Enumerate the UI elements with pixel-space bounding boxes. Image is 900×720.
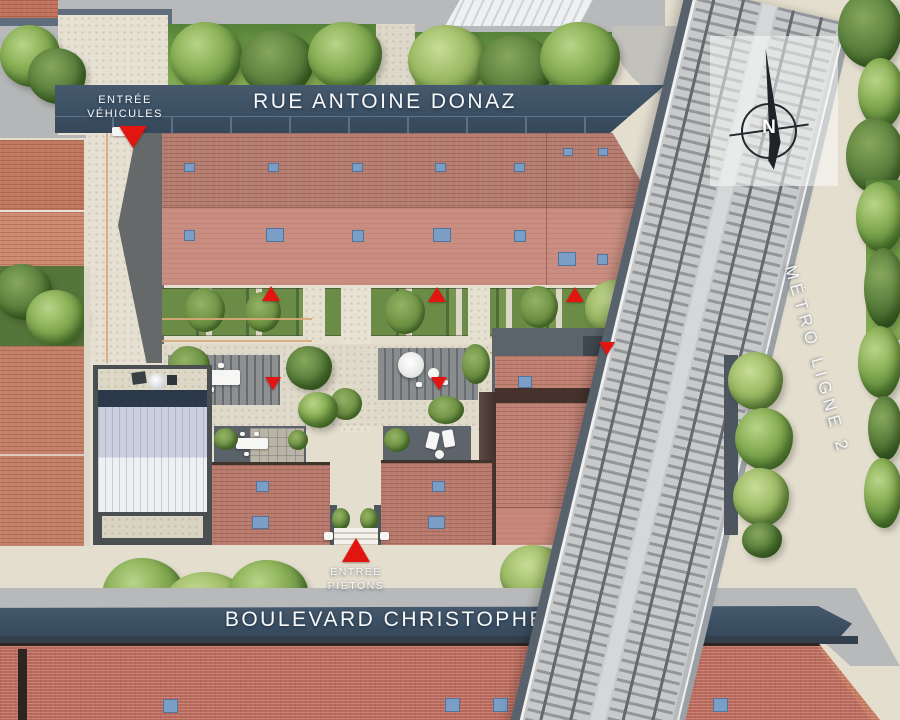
chair [442, 380, 448, 385]
tree [298, 392, 338, 428]
lounger [425, 431, 440, 450]
parasol [398, 352, 424, 378]
vehicle-entrance-line1: ENTRÉE [62, 93, 188, 107]
main-roof-seam [546, 133, 547, 285]
hvac-unit [131, 371, 147, 385]
bush [385, 290, 425, 334]
main-roof-upper-slope [162, 133, 660, 207]
chair [218, 363, 224, 368]
neighbor-roof-top-left [0, 0, 58, 18]
tree [170, 22, 242, 92]
skylight [352, 163, 363, 172]
pergola-beam [162, 318, 312, 320]
neighbor-roof-ridge [0, 454, 90, 456]
building-B-roof [381, 460, 492, 545]
hvac-unit [167, 375, 177, 385]
vehicle-entrance-label: ENTRÉE VÉHICULES [62, 93, 188, 121]
terrace-A-plant [288, 430, 308, 450]
skylight [514, 163, 525, 172]
tree [735, 408, 793, 470]
entrance-steps [334, 528, 378, 545]
chair [416, 382, 422, 387]
pedestrian-entrance-label: ENTRÉE PIÉTONS [298, 565, 414, 593]
tree [858, 58, 900, 128]
skylight [713, 698, 728, 712]
chimney-shadow [18, 649, 27, 720]
chair [244, 452, 249, 456]
chair [240, 432, 245, 436]
tree [733, 468, 789, 526]
tree [286, 346, 332, 390]
tree [868, 396, 900, 460]
tree [308, 22, 382, 90]
building-A-roof [212, 462, 330, 545]
skylight [432, 481, 445, 492]
tree [540, 22, 620, 96]
lounger [442, 429, 456, 448]
skylight [514, 230, 526, 242]
round-table [428, 368, 439, 379]
tree [864, 458, 900, 528]
bush [462, 344, 490, 384]
terrace-A-plant [214, 428, 238, 450]
pedestrian-entrance-line2: PIÉTONS [298, 579, 414, 593]
tree [856, 182, 900, 252]
tree [728, 352, 783, 410]
skylight [598, 148, 608, 156]
satellite-dish [148, 373, 166, 390]
pedestrian-entrance-line1: ENTRÉE [298, 565, 414, 579]
round-table [435, 450, 444, 459]
white-building-bottom-gravel [102, 516, 203, 538]
passage-plant [360, 508, 378, 530]
bottom-building-roof [0, 643, 880, 720]
white-building-roof-ribs [98, 407, 207, 512]
driveway-beam [106, 133, 108, 363]
tree [864, 248, 900, 328]
bush [245, 292, 281, 332]
passage-plant [332, 508, 350, 530]
chair [254, 432, 259, 436]
main-roof-lower-slope [162, 207, 660, 285]
tree [742, 522, 782, 558]
bush [185, 288, 225, 332]
skylight [563, 148, 573, 156]
compass-north-label: N [754, 117, 784, 139]
tree [838, 0, 900, 68]
skylight [518, 376, 532, 388]
bush [428, 396, 464, 424]
skylight [266, 228, 284, 242]
pergola-beam [162, 340, 312, 342]
skylight [558, 252, 576, 266]
gate-step [112, 127, 126, 136]
wall-edge [84, 266, 90, 546]
skylight [184, 230, 195, 241]
terrace-table [236, 438, 268, 449]
skylight [352, 230, 364, 242]
skylight [428, 516, 445, 529]
neighbor-roof-west-upper [0, 140, 84, 210]
tree [858, 326, 900, 398]
terrace-B-plant [384, 428, 410, 452]
skylight [445, 698, 460, 712]
tree [26, 290, 86, 346]
bush [520, 286, 558, 328]
skylight [252, 516, 269, 529]
skylight [435, 163, 446, 172]
neighbor-roof-west-lower [0, 210, 84, 266]
skylight [256, 481, 269, 492]
white-building [93, 365, 212, 545]
white-building-north-slope [98, 390, 207, 407]
skylight [184, 163, 195, 172]
entrance-step-block [324, 532, 333, 540]
boulevard-band-shadow [0, 636, 858, 644]
site-plan: RUE ANTOINE DONAZ ENTRÉE VÉHICULES [0, 0, 900, 720]
skylight [163, 699, 178, 713]
skylight [597, 254, 608, 265]
skylight [268, 163, 279, 172]
neighbor-roof-southwest [0, 346, 90, 546]
entrance-step-block [380, 532, 389, 540]
main-building-roof [162, 133, 660, 285]
skylight [493, 698, 508, 712]
vehicle-entrance-line2: VÉHICULES [62, 107, 188, 121]
skylight [433, 228, 451, 242]
